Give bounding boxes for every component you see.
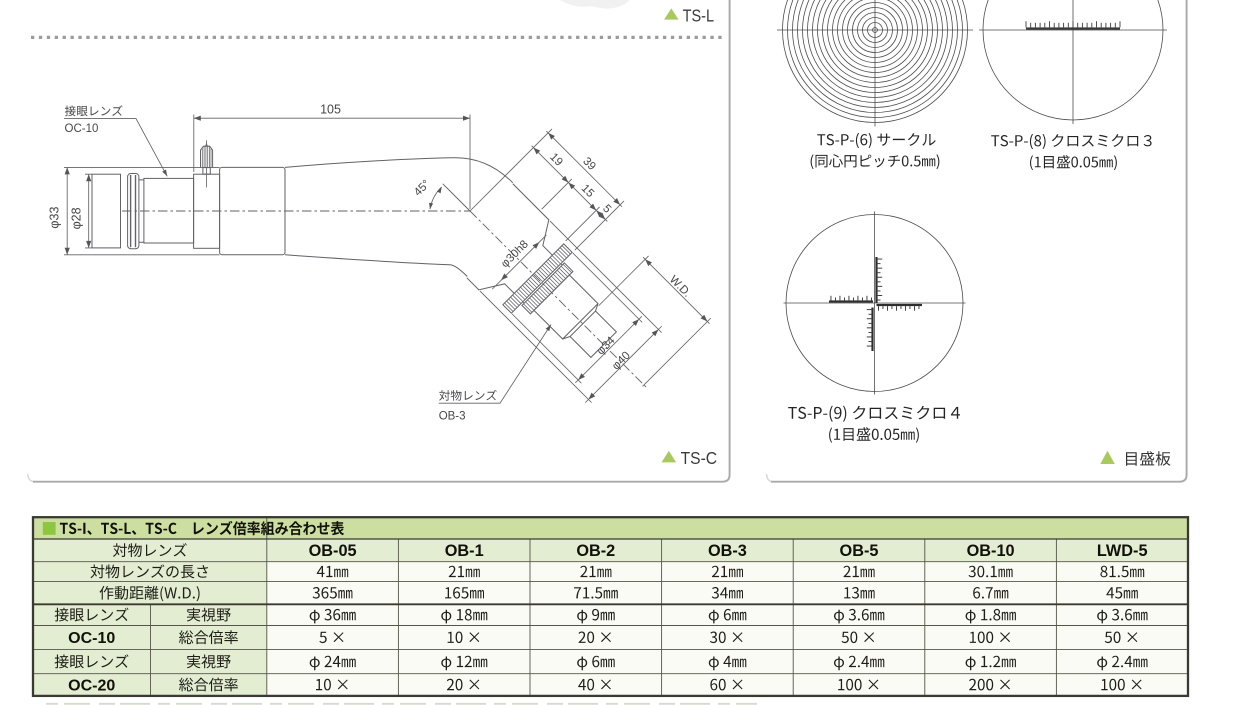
- svg-text:TS-C: TS-C: [681, 448, 718, 468]
- svg-text:105: 105: [320, 103, 341, 117]
- svg-text:OB-2: OB-2: [576, 542, 615, 560]
- svg-text:OB-05: OB-05: [309, 542, 357, 560]
- svg-text:φ33: φ33: [48, 207, 62, 229]
- svg-text:OC-10: OC-10: [68, 630, 115, 647]
- svg-text:LWD-5: LWD-5: [1097, 542, 1148, 560]
- svg-text:OC-20: OC-20: [68, 678, 115, 695]
- svg-text:φ28: φ28: [69, 207, 83, 229]
- svg-text:OB-3: OB-3: [439, 410, 466, 422]
- svg-text:OB-3: OB-3: [708, 542, 747, 560]
- svg-text:TS-L: TS-L: [683, 5, 715, 25]
- svg-text:OB-1: OB-1: [445, 542, 484, 560]
- svg-text:OB-5: OB-5: [840, 542, 879, 560]
- svg-text:OC-10: OC-10: [65, 123, 99, 135]
- svg-text:OB-10: OB-10: [967, 542, 1015, 560]
